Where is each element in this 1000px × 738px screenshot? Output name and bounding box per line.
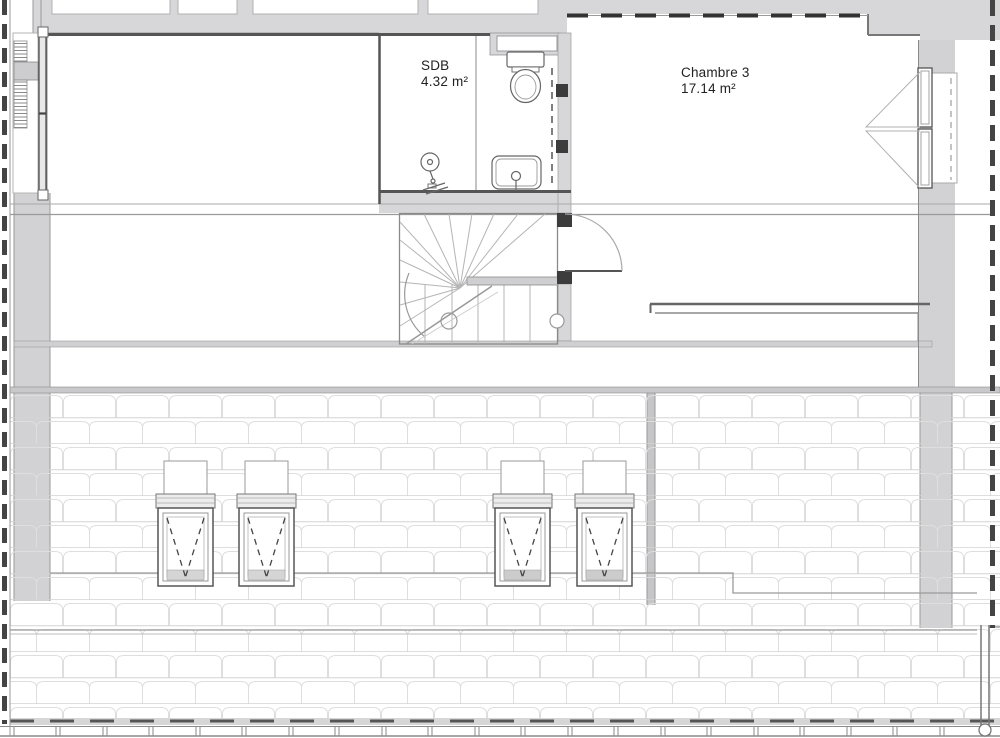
window-frame [39,34,46,113]
staircase [400,214,565,345]
door-jamb [556,84,568,97]
stair-door [557,213,622,284]
eaves [0,718,1000,736]
rafter-ticks [10,727,990,736]
door-jamb [557,271,572,284]
newel-post [550,314,564,328]
toilet [507,52,544,103]
chambre3-south-wall [650,304,930,341]
roof-top-edge [10,387,1000,393]
door-jamb [556,140,568,153]
roof-window-1 [156,461,215,586]
left-facade-window [13,27,48,200]
stairwell-edge [467,277,558,285]
window-frame [918,129,932,188]
top-wall-openings [52,0,538,14]
room-area: 17.14 m² [681,81,750,97]
roof-window-4 [575,461,634,586]
room-area: 4.32 m² [421,74,468,90]
room-name: SDB [421,58,468,74]
door-jamb [557,213,572,227]
shower-fixture [421,153,448,194]
floor-plan-drawing [0,0,1000,738]
floor-plan: SDB 4.32 m² Chambre 3 17.14 m² [0,0,1000,738]
roof-window-3 [493,461,552,586]
room-label-chambre3: Chambre 3 17.14 m² [681,65,750,96]
door-swing-arc [565,214,622,271]
casement-swing [866,131,920,188]
right-facade-window [866,68,957,188]
room-label-sdb: SDB 4.32 m² [421,58,468,89]
window-frame [918,68,932,127]
room-name: Chambre 3 [681,65,750,81]
window-frame [39,114,46,194]
roof-window-2 [237,461,296,586]
casement-swing [866,72,920,127]
washbasin [492,156,541,191]
exterior-sill [932,73,957,183]
